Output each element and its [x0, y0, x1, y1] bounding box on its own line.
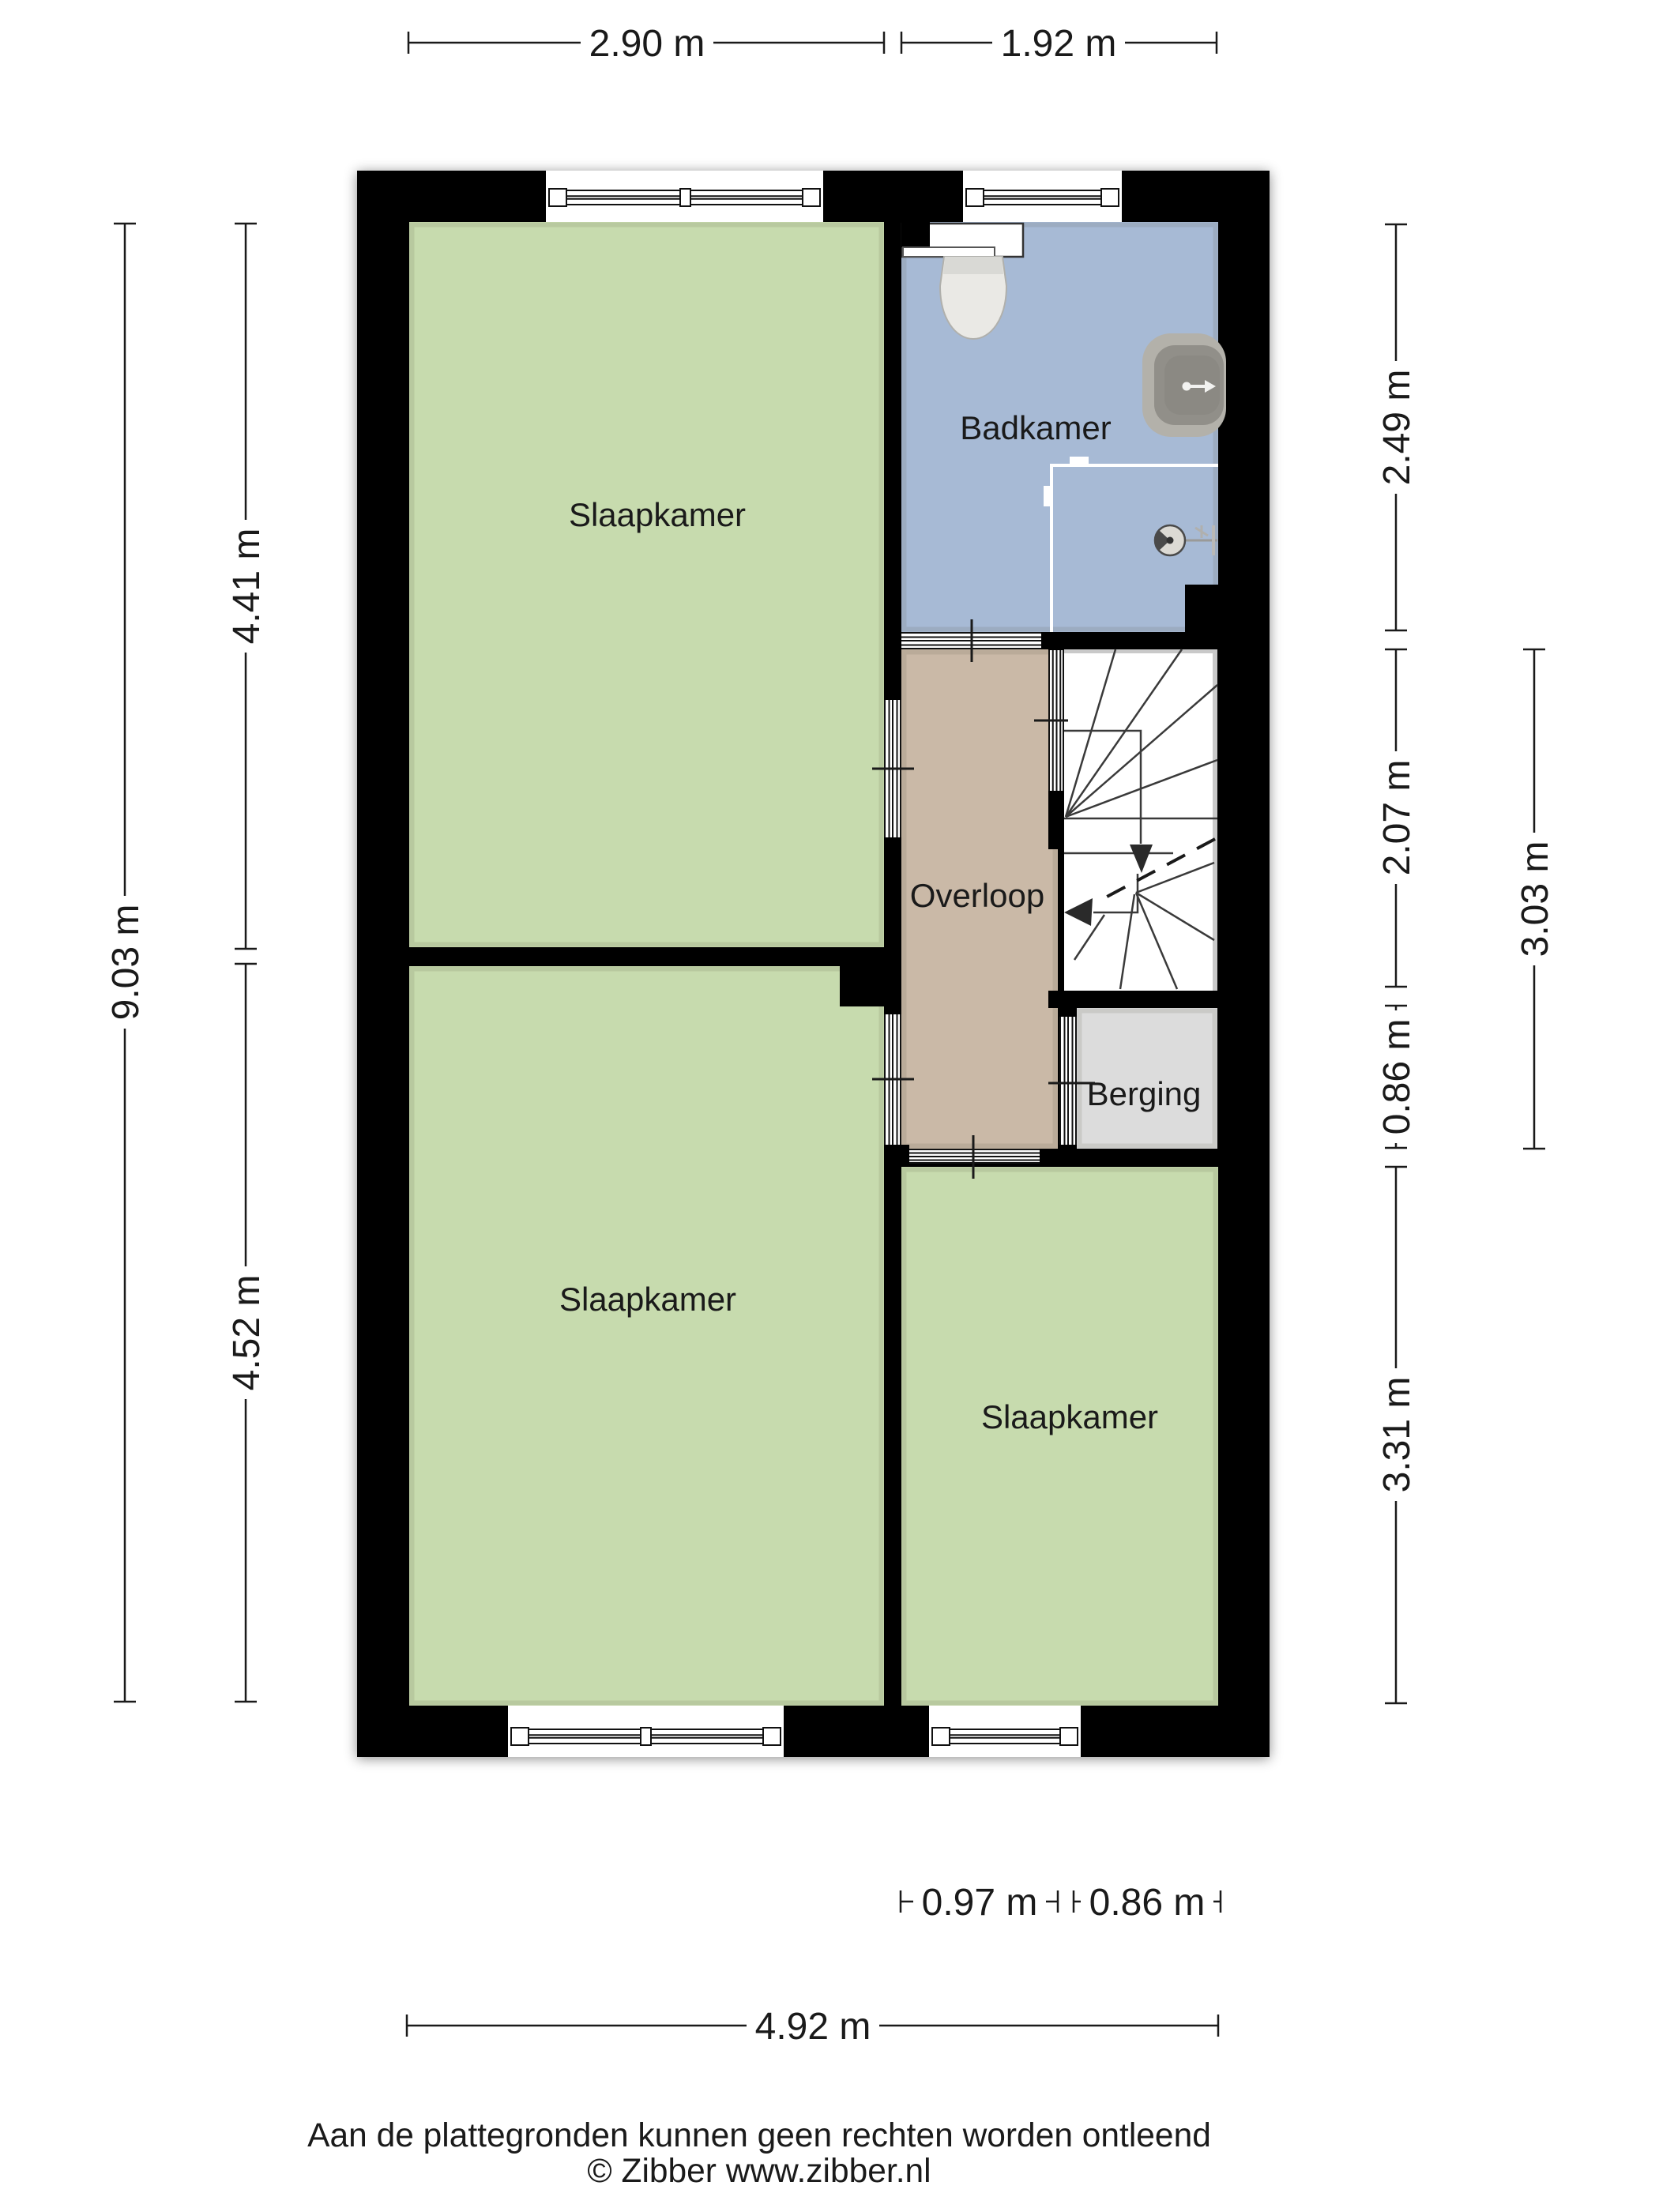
svg-text:Aan de plattegronden kunnen ge: Aan de plattegronden kunnen geen rechten… [307, 2117, 1211, 2154]
svg-text:4.52 m: 4.52 m [226, 1275, 268, 1391]
svg-text:2.07 m: 2.07 m [1376, 760, 1418, 876]
svg-text:2.49 m: 2.49 m [1376, 370, 1418, 486]
svg-text:© Zibber www.zibber.nl: © Zibber www.zibber.nl [587, 2153, 931, 2190]
svg-text:2.90 m: 2.90 m [589, 23, 705, 65]
svg-text:3.31 m: 3.31 m [1376, 1377, 1418, 1493]
svg-text:Slaapkamer: Slaapkamer [559, 1281, 736, 1318]
svg-text:4.41 m: 4.41 m [226, 529, 268, 645]
svg-text:3.03 m: 3.03 m [1514, 841, 1556, 957]
svg-text:Berging: Berging [1087, 1075, 1202, 1112]
svg-text:0.86 m: 0.86 m [1089, 1882, 1206, 1924]
svg-text:Slaapkamer: Slaapkamer [981, 1398, 1158, 1435]
svg-text:4.92 m: 4.92 m [755, 2006, 871, 2048]
svg-text:1.92 m: 1.92 m [1001, 23, 1117, 65]
svg-text:0.86 m: 0.86 m [1376, 1019, 1418, 1135]
svg-text:9.03 m: 9.03 m [105, 905, 147, 1021]
svg-text:Overloop: Overloop [910, 877, 1044, 914]
svg-text:Badkamer: Badkamer [960, 409, 1111, 446]
svg-text:Slaapkamer: Slaapkamer [569, 496, 746, 533]
svg-text:0.97 m: 0.97 m [922, 1882, 1038, 1924]
